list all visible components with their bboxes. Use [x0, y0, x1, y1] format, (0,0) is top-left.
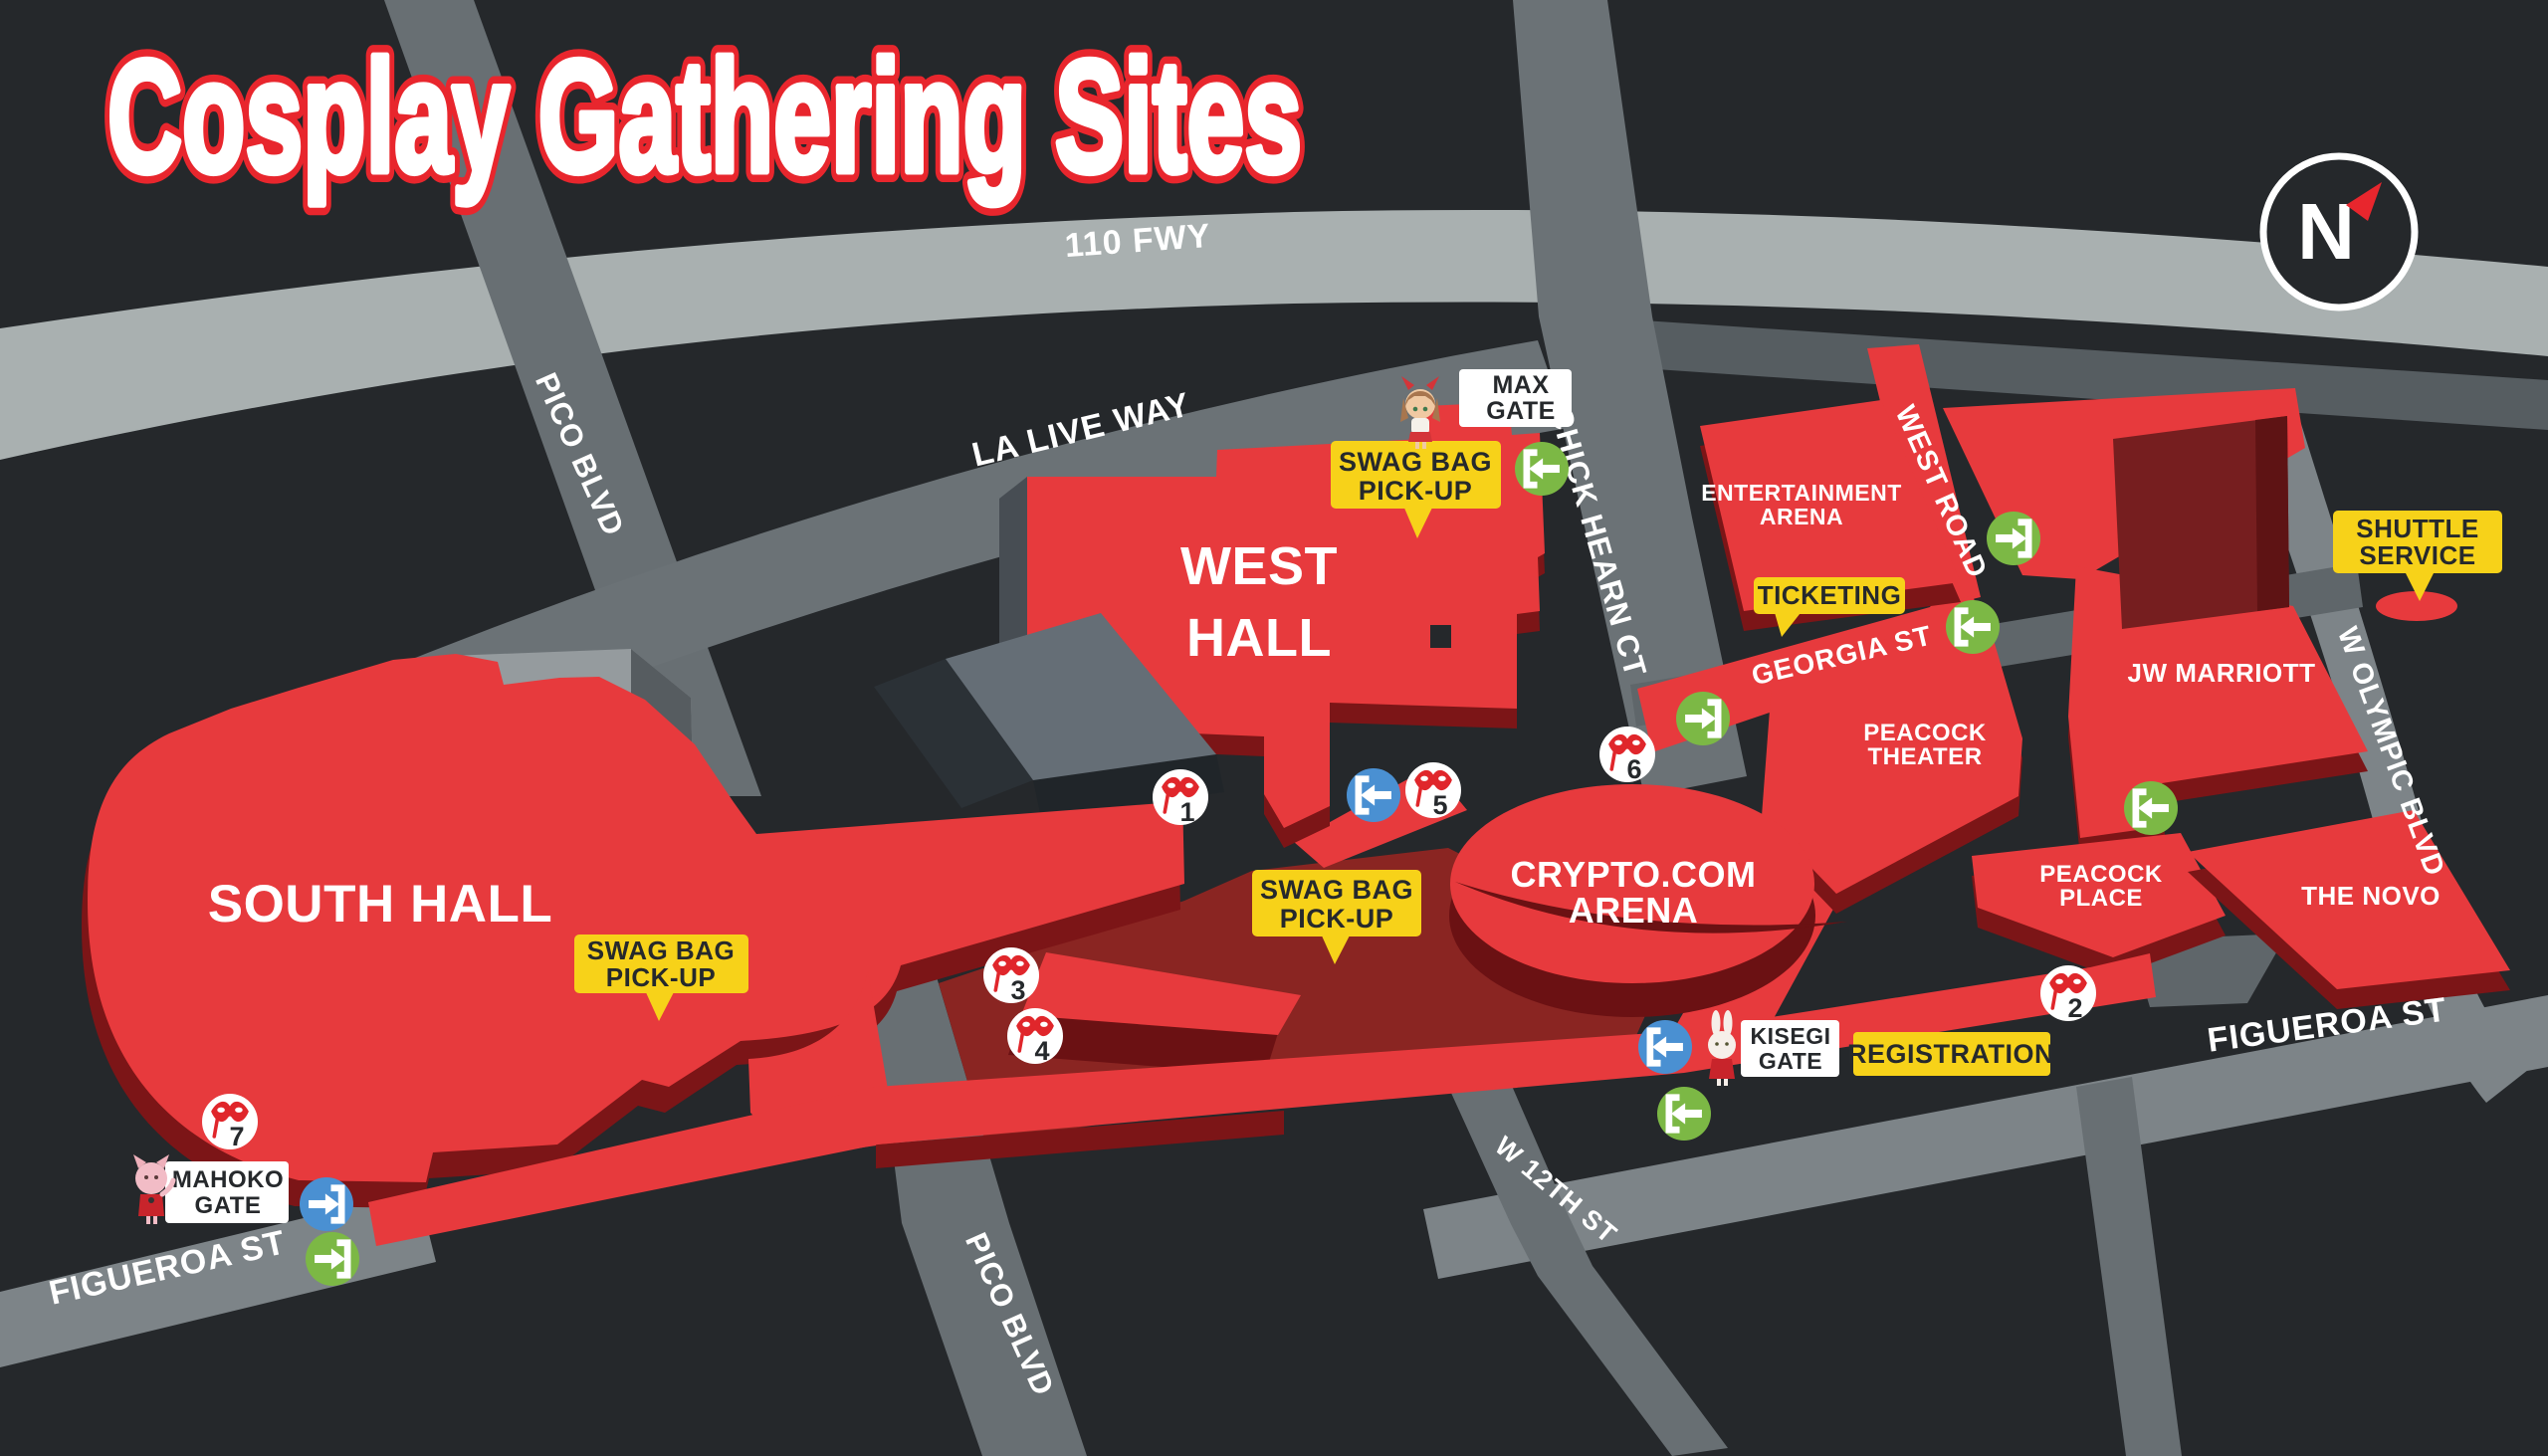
svg-text:WEST: WEST — [1180, 536, 1338, 596]
svg-text:SWAG BAG: SWAG BAG — [587, 936, 735, 965]
svg-text:3: 3 — [1010, 975, 1025, 1005]
svg-text:ARENA: ARENA — [1760, 504, 1843, 529]
svg-text:2: 2 — [2067, 993, 2082, 1023]
svg-text:SWAG BAG: SWAG BAG — [1339, 447, 1492, 477]
svg-text:5: 5 — [1432, 790, 1447, 820]
svg-text:Cosplay Gathering Sites: Cosplay Gathering Sites — [107, 27, 1302, 205]
svg-text:7: 7 — [229, 1122, 244, 1151]
svg-text:MAX: MAX — [1492, 371, 1549, 399]
svg-text:MAHOKO: MAHOKO — [172, 1166, 284, 1193]
svg-text:PICK-UP: PICK-UP — [1280, 904, 1394, 934]
svg-text:TICKETING: TICKETING — [1758, 580, 1902, 610]
svg-text:SWAG BAG: SWAG BAG — [1260, 875, 1413, 905]
svg-text:REGISTRATION: REGISTRATION — [1847, 1039, 2054, 1069]
svg-text:CRYPTO.COM: CRYPTO.COM — [1510, 854, 1756, 895]
svg-text:PICK-UP: PICK-UP — [1359, 476, 1473, 506]
svg-text:GATE: GATE — [1486, 397, 1556, 425]
svg-text:PEACOCK: PEACOCK — [1863, 720, 1987, 746]
svg-text:THEATER: THEATER — [1867, 743, 1982, 770]
svg-text:ENTERTAINMENT: ENTERTAINMENT — [1701, 480, 1902, 506]
svg-text:1: 1 — [1179, 797, 1194, 827]
svg-text:SERVICE: SERVICE — [2359, 540, 2475, 570]
svg-text:PICK-UP: PICK-UP — [606, 962, 716, 992]
svg-text:THE NOVO: THE NOVO — [2301, 881, 2441, 911]
svg-text:N: N — [2297, 187, 2355, 276]
svg-text:GATE: GATE — [195, 1192, 262, 1219]
svg-text:GATE: GATE — [1759, 1048, 1822, 1074]
svg-text:JW MARRIOTT: JW MARRIOTT — [2128, 658, 2316, 688]
svg-text:PLACE: PLACE — [2059, 885, 2143, 912]
svg-text:4: 4 — [1034, 1036, 1049, 1066]
svg-text:ARENA: ARENA — [1569, 890, 1699, 931]
svg-text:SHUTTLE: SHUTTLE — [2356, 514, 2478, 543]
svg-text:PEACOCK: PEACOCK — [2039, 861, 2163, 888]
svg-text:6: 6 — [1626, 754, 1641, 784]
svg-text:SOUTH HALL: SOUTH HALL — [208, 875, 553, 934]
svg-text:HALL: HALL — [1186, 608, 1332, 668]
svg-text:KISEGI: KISEGI — [1751, 1023, 1831, 1049]
